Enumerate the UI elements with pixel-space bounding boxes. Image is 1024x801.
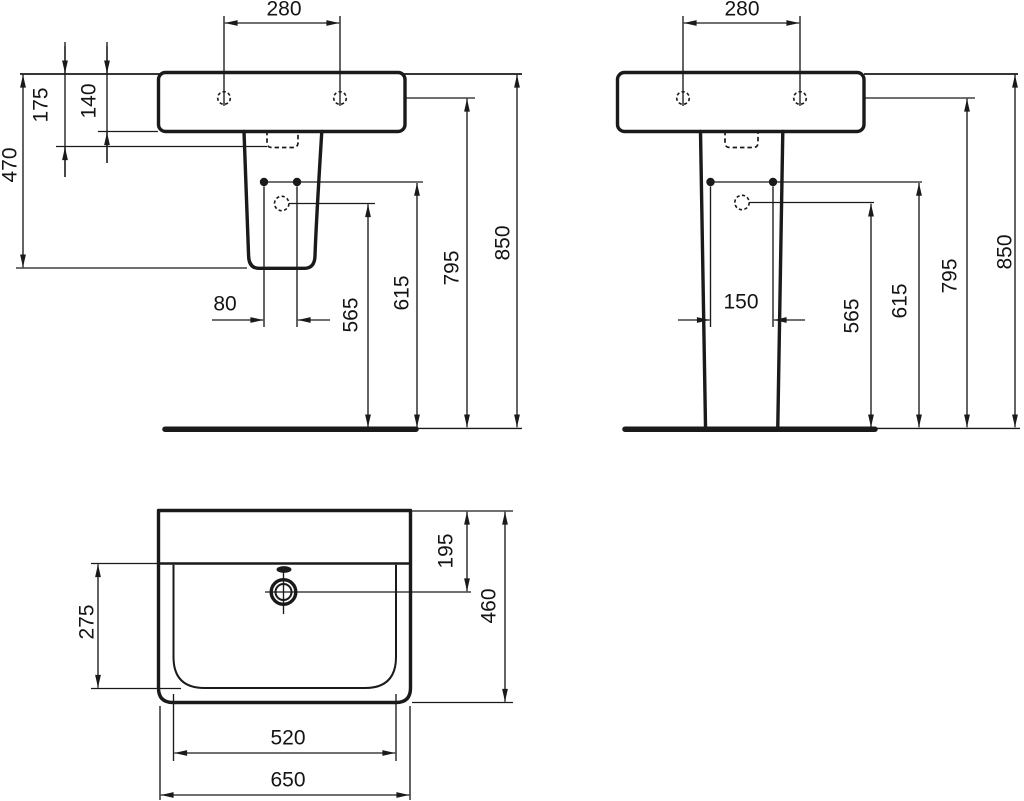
dim-label-side-850: 850: [493, 225, 514, 260]
dim-label-side-565: 565: [341, 297, 362, 332]
dim-label-front-615: 615: [890, 283, 911, 318]
dim-label-plan-520: 520: [270, 728, 305, 749]
drawing-svg: [0, 0, 1024, 801]
dim-label-front-850: 850: [995, 234, 1016, 269]
pedestal-outline: [701, 132, 706, 427]
basin-outline: [159, 73, 406, 132]
dim-label-side-615: 615: [392, 275, 413, 310]
dim-label-front-280: 280: [724, 0, 759, 20]
outlet-hole-dashed: [735, 195, 749, 209]
dim-label-plan-460: 460: [479, 588, 500, 623]
dim-label-side-795: 795: [442, 250, 463, 285]
dim-label-side-280: 280: [266, 0, 301, 20]
dim-label-front-565: 565: [842, 298, 863, 333]
dim-label-front-795: 795: [940, 258, 961, 293]
front-view: [618, 16, 1021, 429]
dim-label-side-140: 140: [79, 83, 100, 118]
drain-outline-dashed: [725, 131, 758, 148]
dim-label-side-470: 470: [0, 147, 21, 182]
dim-label-front-150: 150: [723, 292, 758, 313]
outlet-hole-dashed: [275, 196, 289, 210]
dim-label-side-80: 80: [213, 294, 236, 315]
side-view: [16, 16, 522, 429]
dim-label-plan-650: 650: [270, 770, 305, 791]
dim-label-plan-275: 275: [77, 604, 98, 639]
pedestal-outline: [244, 132, 322, 269]
dim-label-side-175: 175: [31, 87, 52, 122]
dim-label-plan-195: 195: [436, 533, 457, 568]
basin-rim-outline: [159, 511, 411, 703]
basin-outline: [618, 73, 865, 132]
drain-outline-dashed: [267, 131, 298, 148]
overflow-slot: [277, 566, 292, 573]
technical-drawing-canvas: 280 175 140 470 80 565 615 795 850 280 1…: [0, 0, 1024, 801]
pedestal-outline: [778, 132, 783, 427]
